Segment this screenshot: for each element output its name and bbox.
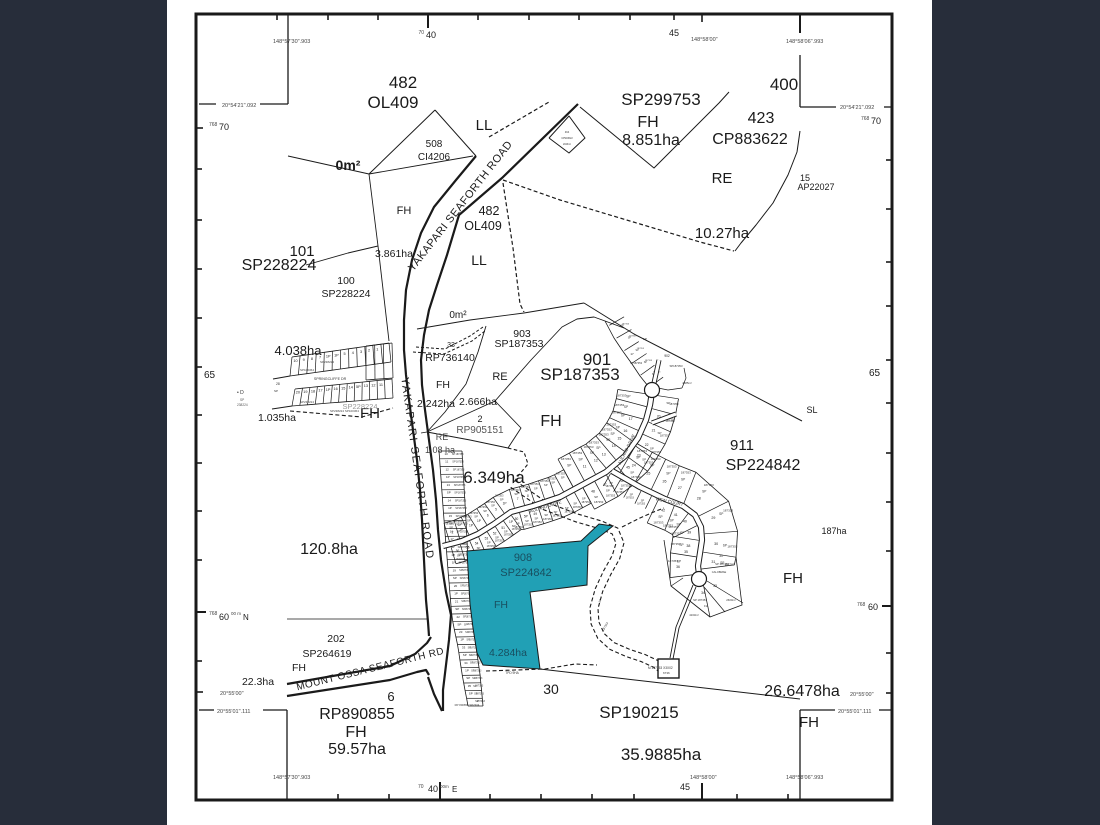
svg-text:SPRINGCLIFFE DR: SPRINGCLIFFE DR (314, 377, 347, 381)
svg-text:187353: 187353 (651, 457, 661, 461)
svg-text:482: 482 (479, 204, 500, 218)
svg-text:187353: 187353 (476, 692, 485, 695)
svg-text:187353: 187353 (495, 494, 504, 498)
svg-text:187353: 187353 (637, 502, 646, 505)
svg-text:1P: 1P (459, 528, 463, 532)
svg-text:35: 35 (684, 550, 688, 554)
svg-text:23: 23 (459, 630, 463, 634)
svg-text:SP187353: SP187353 (630, 361, 643, 365)
svg-text:SP187353: SP187353 (669, 364, 683, 368)
svg-text:SP: SP (447, 491, 451, 495)
svg-text:FH: FH (292, 662, 306, 674)
svg-text:148°57'30".903: 148°57'30".903 (273, 775, 310, 781)
svg-text:10: 10 (293, 359, 297, 363)
svg-text:SP187353: SP187353 (494, 338, 543, 350)
svg-text:19: 19 (453, 568, 457, 572)
svg-text:17: 17 (630, 352, 634, 356)
svg-text:187353: 187353 (606, 493, 616, 497)
svg-text:SP100364: SP100364 (300, 368, 314, 372)
svg-text:1.08 ha: 1.08 ha (425, 445, 455, 455)
svg-text:187353: 187353 (622, 324, 630, 326)
svg-text:SP 187353: SP 187353 (715, 562, 729, 566)
svg-text:6736: 6736 (663, 671, 670, 675)
svg-text:34: 34 (701, 591, 705, 595)
svg-text:187353: 187353 (589, 441, 599, 445)
svg-text:FH: FH (397, 205, 412, 217)
svg-text:SP: SP (606, 489, 610, 493)
svg-text:35.9885ha: 35.9885ha (621, 745, 702, 764)
svg-text:CP903622: CP903622 (561, 137, 573, 140)
svg-text:768: 768 (209, 611, 218, 617)
svg-text:187353: 187353 (456, 557, 465, 561)
svg-text:187353: 187353 (524, 523, 533, 527)
svg-text:20°55'00": 20°55'00" (220, 691, 244, 697)
svg-text:187353: 187353 (614, 403, 624, 407)
svg-text:5P: 5P (524, 514, 528, 518)
svg-text:22: 22 (645, 443, 649, 447)
svg-text:N: N (243, 613, 249, 622)
svg-text:SP: SP (477, 546, 481, 550)
svg-text:SP: SP (534, 486, 538, 490)
svg-text:187353: 187353 (606, 485, 615, 488)
svg-text:187353: 187353 (573, 505, 582, 509)
svg-text:SP: SP (596, 446, 600, 450)
svg-text:1P: 1P (334, 353, 339, 357)
svg-text:LL: LL (476, 117, 493, 134)
svg-text:SL: SL (806, 405, 817, 415)
svg-text:RP890855: RP890855 (319, 706, 395, 723)
svg-text:SP: SP (467, 519, 471, 523)
svg-text:SP: SP (723, 544, 727, 548)
svg-text:60: 60 (868, 602, 878, 612)
svg-text:SP: SP (463, 653, 467, 657)
svg-text:FH: FH (436, 379, 450, 391)
svg-text:187353: 187353 (486, 500, 495, 504)
svg-text:911: 911 (730, 437, 754, 454)
svg-text:464: 464 (565, 130, 570, 134)
svg-text:768: 768 (861, 116, 870, 122)
svg-text:187353: 187353 (475, 685, 484, 688)
svg-text:SP228224: SP228224 (342, 402, 377, 411)
svg-text:4885m²: 4885m² (682, 381, 692, 385)
svg-text:9: 9 (303, 358, 305, 362)
svg-text:OL409: OL409 (464, 219, 502, 233)
svg-text:SP238224: SP238224 (300, 400, 314, 404)
svg-text:1P: 1P (448, 506, 452, 510)
svg-text:187353: 187353 (668, 525, 678, 529)
svg-text:SP: SP (594, 495, 598, 499)
svg-text:187353: 187353 (616, 491, 625, 494)
svg-text:2: 2 (477, 414, 482, 424)
svg-text:SP: SP (500, 497, 504, 501)
svg-text:14: 14 (612, 444, 616, 448)
svg-text:187353: 187353 (547, 477, 556, 481)
svg-text:SP: SP (610, 432, 614, 436)
svg-text:SP: SP (565, 506, 569, 510)
svg-text:20°55'01".111: 20°55'01".111 (838, 709, 871, 715)
svg-text:SP: SP (582, 497, 586, 501)
svg-text:40: 40 (426, 30, 436, 40)
svg-text:SP190215: SP190215 (599, 703, 678, 722)
svg-text:TPD 9HA: TPD 9HA (505, 671, 519, 675)
svg-text:187353: 187353 (477, 700, 486, 703)
svg-text:70: 70 (219, 122, 229, 132)
svg-text:187353: 187353 (453, 519, 462, 523)
svg-text:SP: SP (525, 489, 529, 493)
svg-text:187353: 187353 (487, 544, 496, 548)
svg-text:CP883622: CP883622 (712, 131, 788, 148)
svg-text:SP: SP (650, 464, 654, 468)
svg-text:187353: 187353 (704, 483, 714, 487)
svg-text:24: 24 (632, 464, 636, 468)
svg-text:SP224842: SP224842 (726, 457, 801, 474)
svg-text:187353: 187353 (645, 360, 653, 362)
svg-text:187353: 187353 (631, 475, 641, 479)
svg-text:RP736140: RP736140 (425, 352, 475, 364)
svg-text:33: 33 (462, 645, 466, 649)
svg-text:6: 6 (487, 513, 489, 517)
svg-text:LL: LL (471, 252, 487, 268)
svg-text:400: 400 (770, 75, 798, 94)
svg-text:70: 70 (871, 116, 881, 126)
svg-text:14: 14 (448, 498, 452, 502)
svg-text:4.038ha: 4.038ha (275, 343, 323, 358)
svg-text:187353: 187353 (469, 511, 478, 515)
svg-text:187353: 187353 (530, 482, 539, 486)
svg-text:SP: SP (702, 489, 706, 493)
svg-text:31: 31 (719, 554, 723, 558)
svg-text:187353: 187353 (681, 471, 691, 475)
svg-text:2: 2 (368, 349, 370, 353)
svg-text:21: 21 (652, 429, 656, 433)
svg-text:508: 508 (426, 139, 443, 150)
svg-text:65: 65 (869, 368, 881, 379)
svg-text:OL409: OL409 (367, 93, 418, 112)
svg-text:FH: FH (637, 114, 658, 131)
svg-text:RE: RE (436, 432, 449, 442)
svg-text:RP905151: RP905151 (456, 425, 504, 436)
svg-text:2600m²: 2600m² (726, 598, 736, 602)
svg-text:187353: 187353 (473, 669, 482, 672)
svg-text:SP: SP (554, 510, 558, 514)
svg-text:SP238224: SP238224 (320, 360, 334, 364)
svg-text:SP 187353: SP 187353 (693, 598, 707, 602)
svg-text:187353: 187353 (552, 514, 561, 518)
svg-text:56: 56 (456, 549, 460, 553)
svg-text:30: 30 (714, 542, 718, 546)
svg-text:902: 902 (664, 354, 670, 358)
svg-text:187353: 187353 (472, 662, 481, 665)
svg-text:187353: 187353 (495, 539, 504, 543)
svg-text:13: 13 (602, 453, 606, 457)
svg-text:187353: 187353 (727, 545, 737, 549)
svg-text:FH: FH (783, 570, 803, 587)
svg-text:FH: FH (704, 604, 708, 608)
svg-text:45: 45 (626, 466, 630, 470)
svg-text:187353: 187353 (637, 348, 645, 350)
svg-text:120.8ha: 120.8ha (300, 541, 358, 558)
svg-text:SP: SP (516, 521, 520, 525)
svg-text:SP: SP (624, 405, 628, 409)
svg-text:SP: SP (457, 523, 461, 527)
svg-text:148°58'00": 148°58'00" (691, 37, 718, 43)
svg-text:4.284ha: 4.284ha (489, 647, 527, 659)
svg-text:SP: SP (525, 519, 529, 523)
svg-text:1P: 1P (469, 523, 473, 527)
svg-text:1P: 1P (326, 388, 331, 392)
svg-text:187353: 187353 (667, 465, 677, 469)
svg-text:SP: SP (483, 509, 487, 513)
svg-text:1P: 1P (503, 502, 507, 506)
svg-text:70: 70 (418, 784, 424, 790)
svg-text:187353: 187353 (637, 449, 647, 453)
svg-text:45: 45 (680, 782, 690, 792)
svg-text:SP: SP (567, 464, 571, 468)
svg-text:3.861ha: 3.861ha (375, 248, 413, 260)
svg-text:187353: 187353 (611, 411, 621, 415)
svg-text:SP: SP (544, 483, 548, 487)
svg-text:187353: 187353 (504, 533, 513, 537)
svg-text:SP264619: SP264619 (302, 648, 351, 660)
svg-text:41: 41 (674, 513, 678, 517)
svg-text:16: 16 (333, 387, 337, 391)
svg-text:SP: SP (487, 540, 491, 544)
svg-text:17: 17 (629, 417, 633, 421)
svg-text:187353: 187353 (511, 488, 520, 492)
svg-text:14: 14 (349, 386, 353, 390)
svg-text:30: 30 (543, 681, 559, 697)
svg-text:SP: SP (449, 526, 453, 530)
svg-text:148°57'30".903: 148°57'30".903 (273, 39, 310, 45)
svg-text:7: 7 (517, 497, 519, 501)
svg-text:FH: FH (494, 599, 508, 611)
svg-text:187353: 187353 (458, 499, 467, 502)
svg-text:15: 15 (449, 514, 453, 518)
svg-text:20°55'01".111: 20°55'01".111 (217, 709, 250, 715)
svg-text:20: 20 (454, 584, 458, 588)
svg-text:SP: SP (681, 478, 685, 482)
svg-text:AP22027: AP22027 (797, 182, 834, 192)
svg-text:25: 25 (646, 472, 650, 476)
svg-text:26: 26 (663, 479, 667, 483)
svg-text:RE: RE (712, 170, 733, 187)
svg-text:4: 4 (352, 351, 354, 355)
svg-text:60: 60 (219, 612, 229, 622)
svg-text:2: 2 (452, 531, 454, 535)
svg-text:SP: SP (606, 438, 610, 442)
svg-text:SP: SP (469, 692, 473, 696)
svg-text:1P: 1P (326, 354, 331, 358)
svg-text:1P: 1P (454, 592, 458, 596)
svg-text:187353: 187353 (671, 531, 681, 535)
svg-text:SP: SP (578, 457, 582, 461)
svg-text:13: 13 (364, 384, 368, 388)
svg-text:1: 1 (376, 347, 378, 351)
svg-text:5: 5 (495, 508, 497, 512)
svg-text:FH: FH (799, 714, 819, 731)
svg-text:33: 33 (447, 342, 455, 349)
svg-text:28: 28 (276, 382, 280, 386)
svg-text:SP: SP (491, 503, 495, 507)
svg-text:13: 13 (447, 483, 451, 487)
svg-text:26.6478ha: 26.6478ha (764, 683, 840, 700)
svg-text:48: 48 (591, 489, 595, 493)
svg-text:35: 35 (468, 684, 472, 688)
svg-text:SP: SP (514, 492, 518, 496)
svg-text:8: 8 (527, 494, 529, 498)
svg-text:FH: FH (345, 724, 366, 741)
svg-text:0m²: 0m² (336, 157, 361, 173)
svg-text:10.27ha: 10.27ha (695, 225, 750, 242)
svg-text:187353: 187353 (602, 428, 612, 432)
svg-text:SP: SP (457, 553, 461, 557)
svg-text:5P: 5P (356, 385, 361, 389)
svg-text:21: 21 (455, 599, 459, 603)
svg-text:CALOBMAE: CALOBMAE (712, 570, 727, 574)
svg-text:20°54'21".092: 20°54'21".092 (840, 105, 874, 111)
svg-text:20: 20 (296, 391, 300, 395)
svg-text:SP: SP (455, 607, 459, 611)
svg-text:187353: 187353 (660, 434, 670, 438)
svg-text:40: 40 (683, 519, 687, 523)
svg-text:238224: 238224 (237, 403, 248, 407)
svg-text:17: 17 (318, 389, 322, 393)
svg-text:E: E (452, 785, 457, 794)
svg-text:SP: SP (658, 515, 662, 519)
svg-text:187353: 187353 (583, 445, 593, 449)
svg-text:187353: 187353 (599, 432, 609, 436)
svg-text:RE: RE (492, 371, 507, 383)
svg-text:00 m: 00 m (231, 611, 241, 616)
svg-text:SP: SP (274, 389, 278, 393)
svg-text:100: 100 (337, 275, 355, 287)
svg-text:SP228224: SP228224 (321, 288, 370, 300)
svg-text:12: 12 (371, 384, 375, 388)
svg-text:1P: 1P (465, 669, 469, 673)
svg-text:187353: 187353 (572, 451, 582, 455)
svg-text:22.3ha: 22.3ha (242, 676, 274, 688)
svg-text:65: 65 (204, 370, 216, 381)
svg-text:CI4206: CI4206 (418, 152, 451, 163)
svg-text:187353: 187353 (478, 505, 487, 509)
svg-text:5: 5 (344, 352, 346, 356)
svg-text:33: 33 (713, 584, 717, 588)
svg-text:11: 11 (583, 465, 587, 469)
svg-text:M 167353 X3X02: M 167353 X3X02 (648, 666, 673, 670)
svg-text:1P: 1P (460, 638, 464, 642)
svg-text:187353: 187353 (626, 497, 635, 500)
svg-text:16: 16 (623, 429, 627, 433)
svg-text:SP187353: SP187353 (540, 365, 619, 384)
svg-text:187353: 187353 (459, 507, 468, 510)
svg-text:• D: • D (237, 390, 244, 396)
svg-text:187353: 187353 (723, 508, 733, 512)
svg-text:187353: 187353 (514, 525, 523, 529)
svg-text:187353: 187353 (456, 461, 465, 464)
svg-text:1P: 1P (477, 519, 481, 523)
svg-text:187353: 187353 (533, 520, 542, 524)
svg-text:15: 15 (617, 437, 621, 441)
svg-text:SP: SP (453, 576, 457, 580)
svg-text:8.851ha: 8.851ha (622, 132, 680, 149)
svg-text:3: 3 (360, 350, 362, 354)
svg-text:SP: SP (573, 501, 577, 505)
svg-text:29: 29 (711, 516, 715, 520)
svg-text:423: 423 (748, 110, 775, 127)
svg-text:6.349ha: 6.349ha (463, 468, 525, 487)
svg-text:768: 768 (209, 122, 218, 128)
svg-text:187353: 187353 (669, 402, 679, 406)
svg-text:18: 18 (311, 389, 315, 393)
svg-text:187353: 187353 (616, 394, 626, 398)
svg-text:2.242ha: 2.242ha (417, 398, 455, 410)
svg-text:482: 482 (389, 73, 417, 92)
svg-text:SP: SP (669, 519, 673, 523)
svg-text:11: 11 (445, 460, 448, 464)
svg-text:28: 28 (697, 496, 701, 500)
svg-text:908: 908 (514, 552, 532, 564)
svg-text:187353: 187353 (561, 457, 571, 461)
svg-text:70: 70 (418, 30, 424, 36)
svg-text:27: 27 (678, 486, 682, 490)
svg-text:SP: SP (474, 515, 478, 519)
svg-text:SP: SP (240, 398, 244, 402)
svg-text:SP299753: SP299753 (621, 90, 700, 109)
svg-text:11: 11 (379, 383, 383, 387)
svg-text:39: 39 (687, 530, 691, 534)
svg-text:1P: 1P (643, 337, 647, 341)
svg-text:00m: 00m (440, 784, 449, 789)
svg-text:187353: 187353 (668, 559, 678, 563)
svg-text:SP: SP (551, 481, 555, 485)
svg-text:SP: SP (666, 471, 670, 475)
svg-text:SP: SP (626, 395, 630, 399)
svg-text:12: 12 (446, 467, 450, 471)
svg-text:6: 6 (387, 689, 394, 704)
svg-text:FH: FH (540, 413, 561, 430)
svg-text:2023m²: 2023m² (563, 143, 571, 146)
svg-text:SP: SP (590, 451, 594, 455)
svg-text:187353: 187353 (463, 515, 472, 519)
svg-text:187353: 187353 (456, 453, 465, 456)
svg-text:187ha: 187ha (821, 526, 846, 536)
svg-text:12: 12 (594, 459, 598, 463)
svg-text:0m²: 0m² (449, 310, 467, 321)
svg-text:187353: 187353 (556, 472, 565, 476)
svg-text:148°58'06".993: 148°58'06".993 (786, 39, 823, 45)
svg-text:45: 45 (669, 28, 679, 38)
svg-text:187353: 187353 (671, 542, 681, 546)
svg-text:50: 50 (515, 517, 519, 521)
svg-text:19: 19 (303, 390, 307, 394)
svg-text:4163m²: 4163m² (689, 613, 699, 617)
svg-text:20°54'21".092: 20°54'21".092 (222, 103, 256, 109)
svg-text:187353: 187353 (629, 336, 637, 338)
svg-text:768: 768 (857, 602, 866, 608)
svg-text:187353: 187353 (581, 500, 590, 504)
svg-text:187353: 187353 (474, 677, 483, 680)
svg-text:148°58'06".993: 148°58'06".993 (786, 775, 823, 781)
svg-text:22: 22 (457, 615, 461, 619)
svg-text:SP224842: SP224842 (500, 567, 551, 579)
svg-text:187353: 187353 (564, 509, 573, 513)
svg-text:SP: SP (561, 476, 565, 480)
svg-text:40: 40 (428, 784, 438, 794)
svg-text:38: 38 (686, 544, 690, 548)
svg-text:20°55'00": 20°55'00" (850, 692, 874, 698)
svg-text:36: 36 (676, 565, 680, 569)
svg-text:148°58'00": 148°58'00" (690, 775, 717, 781)
